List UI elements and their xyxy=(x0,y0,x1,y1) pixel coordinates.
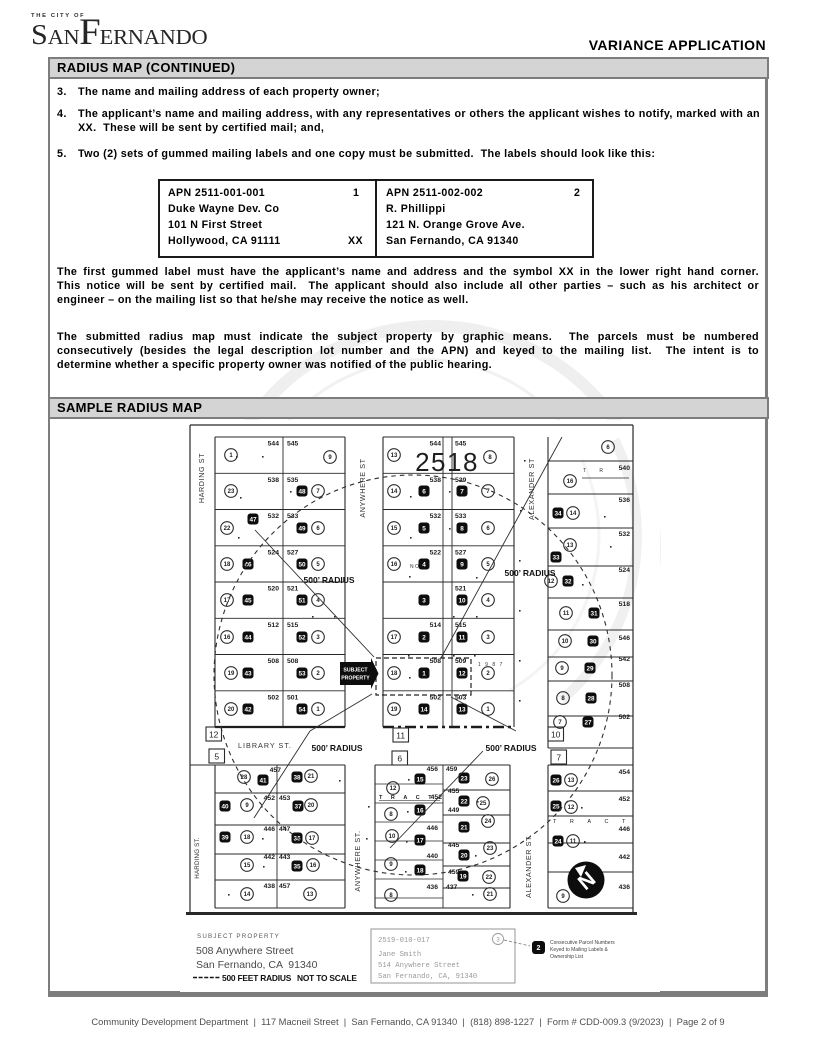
svg-text:524: 524 xyxy=(619,567,631,574)
svg-text:538: 538 xyxy=(430,477,442,484)
svg-text:10: 10 xyxy=(389,834,396,840)
svg-text:11: 11 xyxy=(570,839,577,845)
svg-text:10: 10 xyxy=(562,639,569,645)
svg-text:27: 27 xyxy=(584,719,592,726)
svg-text:500’ RADIUS: 500’ RADIUS xyxy=(485,743,536,753)
svg-text:31: 31 xyxy=(590,610,598,617)
svg-text:21: 21 xyxy=(460,824,468,831)
svg-text:455: 455 xyxy=(448,788,460,795)
svg-text:12: 12 xyxy=(390,786,397,792)
svg-text:12: 12 xyxy=(568,805,575,811)
svg-text:17: 17 xyxy=(416,837,424,844)
svg-text:29: 29 xyxy=(586,665,594,672)
svg-text:ANYWHERE ST: ANYWHERE ST xyxy=(358,458,367,517)
svg-text:508: 508 xyxy=(619,682,631,689)
svg-text:446: 446 xyxy=(619,826,631,833)
svg-text:ANYWHERE ST.: ANYWHERE ST. xyxy=(353,830,362,891)
svg-text:508: 508 xyxy=(268,658,280,665)
svg-text:500 FEET RADIUS: 500 FEET RADIUS xyxy=(222,973,292,983)
svg-text:501: 501 xyxy=(287,694,299,701)
svg-text:ALEXANDER ST: ALEXANDER ST xyxy=(527,458,536,520)
svg-text:San Fernando, CA, 91340: San Fernando, CA, 91340 xyxy=(378,973,477,981)
svg-text:10: 10 xyxy=(458,597,466,604)
svg-text:54: 54 xyxy=(298,706,306,713)
svg-text:17: 17 xyxy=(391,635,398,641)
svg-text:13: 13 xyxy=(307,892,314,898)
svg-text:15: 15 xyxy=(391,526,398,532)
svg-text:19: 19 xyxy=(391,707,398,713)
svg-text:HARDING ST.: HARDING ST. xyxy=(194,837,201,878)
svg-text:SUBJECT PROPERTY: SUBJECT PROPERTY xyxy=(197,933,280,940)
svg-text:37: 37 xyxy=(294,803,302,810)
svg-text:533: 533 xyxy=(287,513,299,520)
svg-text:26: 26 xyxy=(489,777,496,783)
svg-text:502: 502 xyxy=(619,714,631,721)
svg-text:21: 21 xyxy=(308,774,315,780)
svg-text:518: 518 xyxy=(619,601,631,608)
svg-text:508: 508 xyxy=(430,658,442,665)
svg-text:NOT TO SCALE: NOT TO SCALE xyxy=(297,973,357,983)
svg-text:22: 22 xyxy=(486,875,493,881)
svg-text:544: 544 xyxy=(430,441,442,448)
svg-text:447: 447 xyxy=(279,826,291,833)
svg-text:18: 18 xyxy=(416,867,424,874)
svg-text:38: 38 xyxy=(293,774,301,781)
svg-text:7: 7 xyxy=(556,753,561,763)
svg-text:446: 446 xyxy=(427,825,439,832)
svg-text:4: 4 xyxy=(422,561,426,568)
svg-text:49: 49 xyxy=(298,525,306,532)
svg-text:13: 13 xyxy=(568,778,575,784)
svg-text:452: 452 xyxy=(619,796,631,803)
svg-text:12: 12 xyxy=(209,730,219,740)
svg-text:19: 19 xyxy=(459,873,467,880)
svg-text:515: 515 xyxy=(287,622,299,629)
svg-text:20: 20 xyxy=(228,707,235,713)
svg-text:26: 26 xyxy=(552,777,560,784)
svg-text:502: 502 xyxy=(268,694,280,701)
svg-text:500’ RADIUS: 500’ RADIUS xyxy=(311,743,362,753)
svg-text:453: 453 xyxy=(279,795,291,802)
svg-text:545: 545 xyxy=(455,441,467,448)
svg-text:542: 542 xyxy=(619,656,631,663)
svg-text:522: 522 xyxy=(430,549,442,556)
svg-text:21: 21 xyxy=(487,892,494,898)
svg-text:508 Anywhere Street: 508 Anywhere Street xyxy=(196,945,294,957)
svg-text:515: 515 xyxy=(455,622,467,629)
svg-text:12: 12 xyxy=(458,670,466,677)
svg-text:33: 33 xyxy=(552,554,560,561)
svg-text:457: 457 xyxy=(270,767,282,774)
svg-text:12: 12 xyxy=(548,579,555,585)
svg-text:47: 47 xyxy=(249,516,257,523)
svg-text:456: 456 xyxy=(427,766,439,773)
svg-text:538: 538 xyxy=(268,477,280,484)
svg-text:442: 442 xyxy=(619,854,631,861)
svg-text:T R: T R xyxy=(583,468,609,474)
svg-text:5: 5 xyxy=(214,752,219,762)
svg-text:Consecutive Parcel Numbers: Consecutive Parcel Numbers xyxy=(550,940,615,946)
svg-text:14: 14 xyxy=(570,511,577,517)
svg-text:2518: 2518 xyxy=(415,447,479,477)
svg-text:17: 17 xyxy=(309,836,316,842)
svg-text:512: 512 xyxy=(268,622,280,629)
svg-text:6: 6 xyxy=(397,754,402,764)
svg-text:TRACT: TRACT xyxy=(553,819,639,825)
svg-text:ALEXANDER ST.: ALEXANDER ST. xyxy=(524,834,533,898)
svg-text:13: 13 xyxy=(458,706,466,713)
svg-text:23: 23 xyxy=(460,775,468,782)
svg-text:532: 532 xyxy=(268,513,280,520)
svg-text:Keyed to Mailing Labels &: Keyed to Mailing Labels & xyxy=(550,947,608,953)
svg-text:6: 6 xyxy=(422,488,426,495)
svg-text:546: 546 xyxy=(619,635,631,642)
svg-text:45: 45 xyxy=(244,597,252,604)
svg-text:28: 28 xyxy=(587,695,595,702)
svg-text:43: 43 xyxy=(244,670,252,677)
svg-text:440: 440 xyxy=(427,853,439,860)
svg-text:51: 51 xyxy=(298,597,306,604)
svg-text:35: 35 xyxy=(293,863,301,870)
svg-text:514: 514 xyxy=(430,622,442,629)
svg-text:457: 457 xyxy=(279,883,291,890)
svg-text:2: 2 xyxy=(422,634,426,641)
svg-text:15: 15 xyxy=(244,863,251,869)
svg-text:438: 438 xyxy=(264,883,276,890)
svg-text:San Fernando, CA 91340: San Fernando, CA 91340 xyxy=(196,959,318,971)
svg-text:9: 9 xyxy=(460,561,464,568)
svg-text:11: 11 xyxy=(396,731,405,741)
svg-text:Ownership List: Ownership List xyxy=(550,954,584,960)
svg-text:533: 533 xyxy=(455,513,467,520)
svg-text:11: 11 xyxy=(563,611,570,617)
svg-text:520: 520 xyxy=(268,586,280,593)
svg-text:527: 527 xyxy=(287,549,299,556)
svg-text:3: 3 xyxy=(422,597,426,604)
svg-text:18: 18 xyxy=(224,562,231,568)
svg-text:532: 532 xyxy=(430,513,442,520)
svg-text:Jane Smith: Jane Smith xyxy=(378,951,421,959)
svg-text:7: 7 xyxy=(460,488,464,495)
svg-text:24: 24 xyxy=(485,819,492,825)
svg-text:SUBJECT: SUBJECT xyxy=(343,668,368,674)
svg-text:50: 50 xyxy=(298,561,306,568)
svg-text:52: 52 xyxy=(298,634,306,641)
svg-text:508: 508 xyxy=(287,658,299,665)
svg-text:11: 11 xyxy=(459,634,466,641)
svg-text:PROPERTY: PROPERTY xyxy=(341,676,370,682)
svg-text:23: 23 xyxy=(487,846,494,852)
svg-text:544: 544 xyxy=(268,441,280,448)
svg-text:22: 22 xyxy=(460,798,468,805)
svg-text:20: 20 xyxy=(308,803,315,809)
svg-text:500’ RADIUS: 500’ RADIUS xyxy=(504,568,555,578)
svg-text:8: 8 xyxy=(460,525,464,532)
svg-text:443: 443 xyxy=(279,854,291,861)
svg-text:34: 34 xyxy=(554,510,562,517)
svg-text:442: 442 xyxy=(264,854,276,861)
svg-text:25: 25 xyxy=(552,803,560,810)
svg-text:32: 32 xyxy=(564,578,572,585)
svg-text:445: 445 xyxy=(448,842,460,849)
svg-text:40: 40 xyxy=(221,803,229,810)
svg-text:10: 10 xyxy=(551,730,561,740)
svg-text:41: 41 xyxy=(259,777,267,784)
svg-text:437: 437 xyxy=(446,884,458,891)
svg-text:42: 42 xyxy=(244,706,252,713)
svg-text:2519-010-017: 2519-010-017 xyxy=(378,937,430,945)
svg-text:509: 509 xyxy=(455,658,467,665)
svg-text:2: 2 xyxy=(537,945,541,952)
svg-text:N O: N O xyxy=(410,564,419,570)
svg-text:48: 48 xyxy=(298,488,306,495)
svg-text:HARDING ST: HARDING ST xyxy=(197,453,206,503)
svg-text:13: 13 xyxy=(391,453,398,459)
svg-text:536: 536 xyxy=(619,497,631,504)
svg-text:449: 449 xyxy=(448,807,460,814)
svg-text:22: 22 xyxy=(224,526,231,532)
svg-text:16: 16 xyxy=(310,863,317,869)
svg-text:527: 527 xyxy=(455,549,467,556)
svg-text:500’ RADIUS: 500’ RADIUS xyxy=(303,575,354,585)
svg-text:14: 14 xyxy=(420,706,428,713)
svg-text:13: 13 xyxy=(567,543,574,549)
svg-text:436: 436 xyxy=(427,884,439,891)
svg-text:514 Anywhere Street: 514 Anywhere Street xyxy=(378,962,460,970)
svg-text:16: 16 xyxy=(567,479,574,485)
svg-text:20: 20 xyxy=(460,852,468,859)
svg-text:25: 25 xyxy=(480,801,487,807)
svg-text:14: 14 xyxy=(244,892,251,898)
svg-text:23: 23 xyxy=(228,489,235,495)
svg-text:436: 436 xyxy=(619,884,631,891)
svg-text:5: 5 xyxy=(422,525,426,532)
svg-text:459: 459 xyxy=(446,766,458,773)
svg-text:39: 39 xyxy=(221,834,229,841)
svg-text:44: 44 xyxy=(244,634,252,641)
svg-text:53: 53 xyxy=(298,670,306,677)
svg-text:19: 19 xyxy=(228,671,235,677)
svg-text:532: 532 xyxy=(619,531,631,538)
svg-text:18: 18 xyxy=(391,671,398,677)
svg-text:545: 545 xyxy=(287,441,299,448)
svg-text:18: 18 xyxy=(244,835,251,841)
svg-text:30: 30 xyxy=(589,638,597,645)
svg-text:521: 521 xyxy=(455,586,467,593)
svg-text:535: 535 xyxy=(287,477,299,484)
svg-text:454: 454 xyxy=(619,769,631,776)
svg-text:LIBRARY ST.: LIBRARY ST. xyxy=(238,741,292,750)
svg-text:524: 524 xyxy=(268,549,280,556)
svg-text:16: 16 xyxy=(391,562,398,568)
svg-text:540: 540 xyxy=(619,465,631,472)
svg-text:24: 24 xyxy=(554,838,562,845)
svg-text:446: 446 xyxy=(264,826,276,833)
svg-text:1: 1 xyxy=(422,670,426,677)
svg-text:16: 16 xyxy=(224,635,231,641)
svg-text:14: 14 xyxy=(391,489,398,495)
svg-text:521: 521 xyxy=(287,586,299,593)
svg-text:15: 15 xyxy=(416,776,424,783)
